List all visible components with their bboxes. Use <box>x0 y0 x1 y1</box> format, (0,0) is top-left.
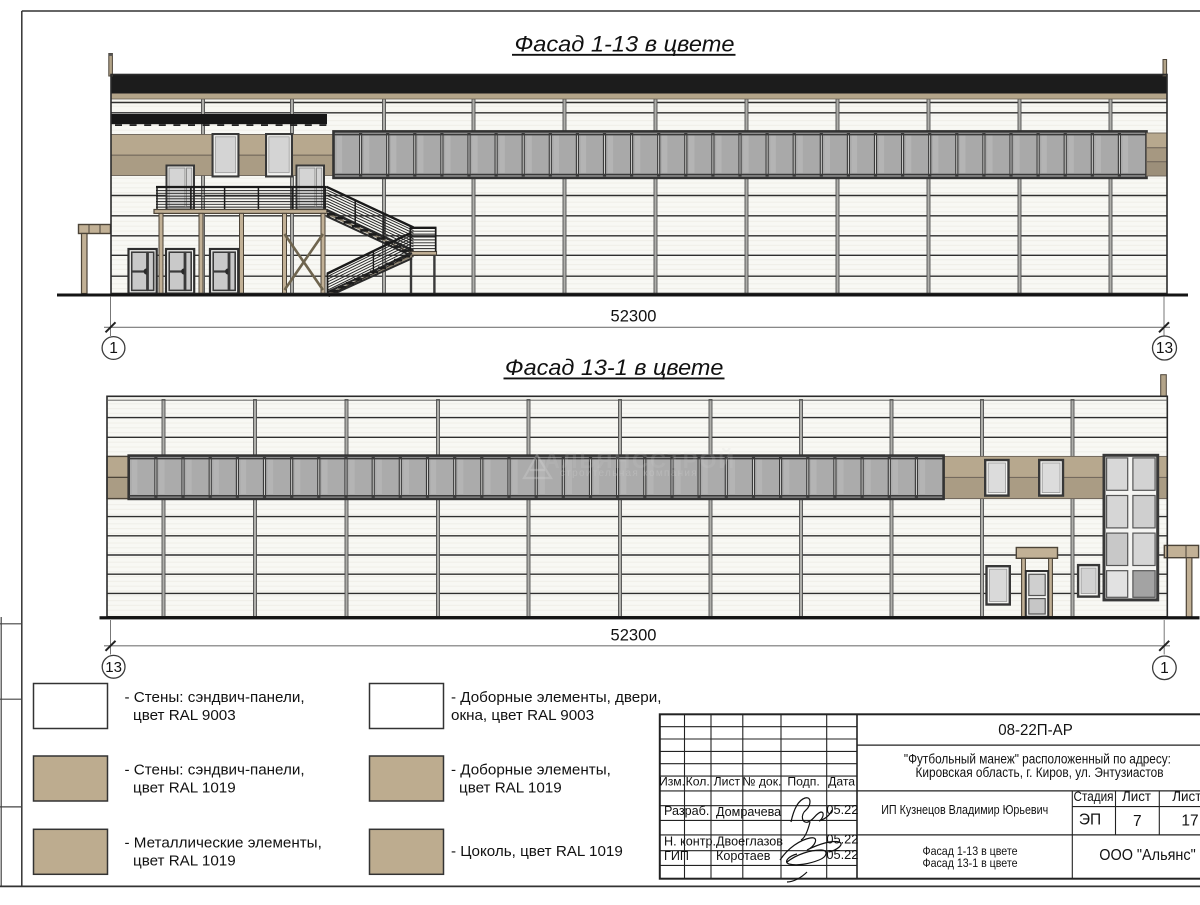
svg-text:Кировская область, г. Киров, у: Кировская область, г. Киров, ул. Энтузиа… <box>916 765 1164 780</box>
svg-text:- Доборные элементы,: - Доборные элементы, <box>451 762 611 779</box>
svg-text:05.22: 05.22 <box>826 832 858 847</box>
svg-text:13: 13 <box>105 659 122 676</box>
svg-text:1: 1 <box>1160 660 1169 677</box>
svg-text:Лист: Лист <box>714 775 741 789</box>
svg-text:- Металлические элементы,: - Металлические элементы, <box>125 835 322 852</box>
svg-text:Стадия: Стадия <box>1074 789 1114 804</box>
svg-text:- Доборные элементы, двери,: - Доборные элементы, двери, <box>451 689 661 706</box>
svg-text:13: 13 <box>1156 340 1173 357</box>
svg-text:7: 7 <box>1133 813 1142 830</box>
svg-text:Листов: Листов <box>1172 789 1200 804</box>
svg-text:Фасад 13-1 в цвете: Фасад 13-1 в цвете <box>923 856 1018 870</box>
svg-text:Подп.: Подп. <box>787 775 819 789</box>
svg-text:цвет RAL 1019: цвет RAL 1019 <box>459 780 562 797</box>
svg-text:17: 17 <box>1181 813 1198 830</box>
svg-text:Домрачева: Домрачева <box>716 805 781 819</box>
svg-text:- Стены: сэндвич-панели,: - Стены: сэндвич-панели, <box>125 689 305 706</box>
svg-text:Коротаев: Коротаев <box>716 849 771 863</box>
svg-text:Кол.: Кол. <box>686 775 710 789</box>
svg-text:05.22: 05.22 <box>826 847 858 862</box>
svg-text:05.22: 05.22 <box>826 802 858 817</box>
svg-text:ГИП: ГИП <box>664 849 689 863</box>
svg-text:Разраб.: Разраб. <box>664 804 709 818</box>
svg-text:08-22П-АР: 08-22П-АР <box>998 722 1073 739</box>
svg-text:цвет RAL 1019: цвет RAL 1019 <box>133 780 236 797</box>
svg-text:52300: 52300 <box>611 308 657 326</box>
svg-text:Фасад 1-13 в цвете: Фасад 1-13 в цвете <box>515 31 735 56</box>
svg-text:окна, цвет RAL 9003: окна, цвет RAL 9003 <box>451 707 594 724</box>
svg-text:- Цоколь, цвет RAL 1019: - Цоколь, цвет RAL 1019 <box>451 843 623 860</box>
svg-text:Лист: Лист <box>1122 789 1151 804</box>
svg-text:1: 1 <box>109 340 118 357</box>
svg-text:Дата: Дата <box>828 775 855 789</box>
svg-text:Фасад 13-1 в цвете: Фасад 13-1 в цвете <box>505 355 724 380</box>
svg-text:Двоеглазов: Двоеглазов <box>716 835 783 849</box>
svg-text:ИП Кузнецов Владимир Юрьевич: ИП Кузнецов Владимир Юрьевич <box>881 802 1048 817</box>
svg-text:52300: 52300 <box>611 627 657 645</box>
svg-text:строительная компания: строительная компания <box>560 468 698 479</box>
svg-text:Изм.: Изм. <box>659 775 685 789</box>
svg-text:- Стены: сэндвич-панели,: - Стены: сэндвич-панели, <box>125 762 305 779</box>
svg-text:Н. контр.: Н. контр. <box>664 834 716 848</box>
svg-text:цвет RAL 1019: цвет RAL 1019 <box>133 853 236 870</box>
svg-text:ЭП: ЭП <box>1079 812 1101 829</box>
svg-text:ООО "Альянс": ООО "Альянс" <box>1099 847 1196 864</box>
svg-text:№ док.: № док. <box>742 775 781 789</box>
svg-text:цвет RAL 9003: цвет RAL 9003 <box>133 707 236 724</box>
